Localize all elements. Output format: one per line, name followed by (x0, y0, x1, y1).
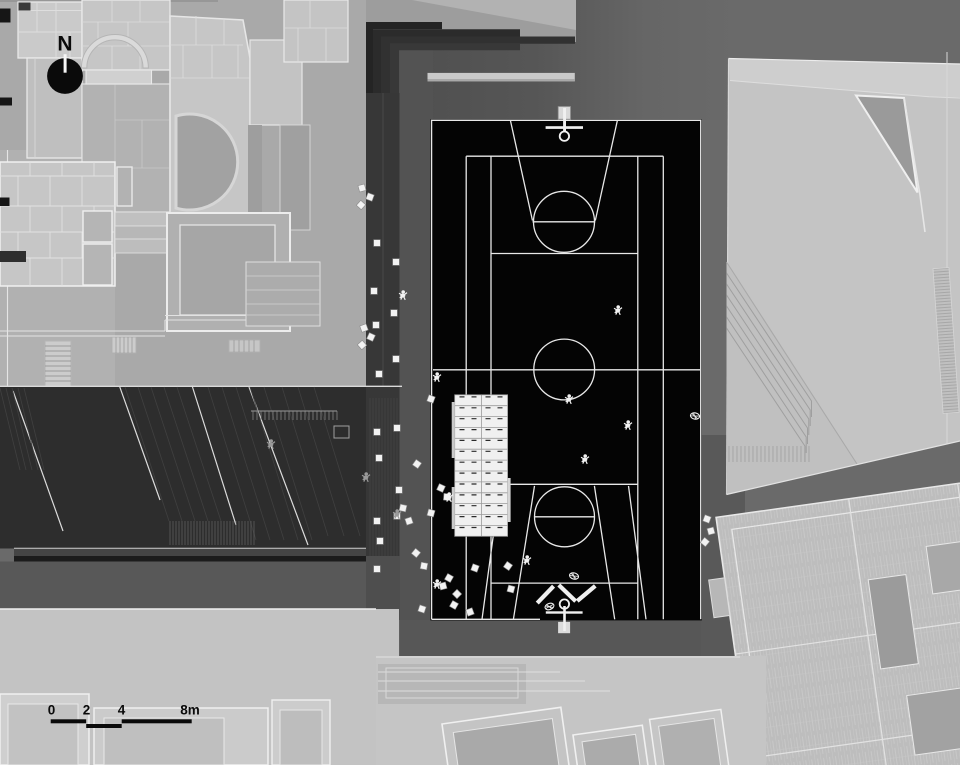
svg-text:N: N (57, 33, 72, 56)
svg-text:0: 0 (48, 703, 56, 718)
svg-text:8m: 8m (180, 703, 200, 718)
svg-text:4: 4 (118, 703, 126, 718)
svg-text:2: 2 (83, 703, 91, 718)
